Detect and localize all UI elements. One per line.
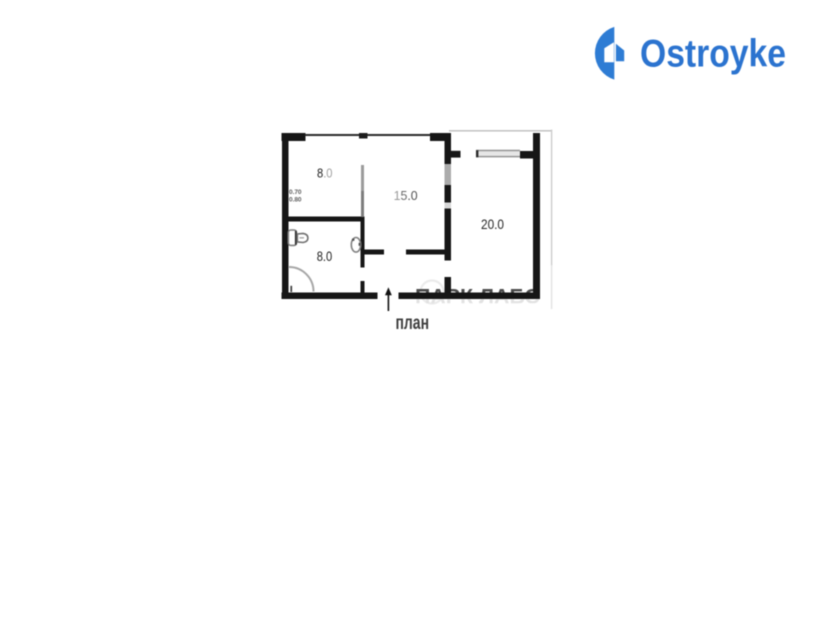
svg-text:план: план bbox=[396, 313, 430, 334]
svg-text:0.70: 0.70 bbox=[289, 189, 302, 196]
svg-text:8.0: 8.0 bbox=[317, 166, 333, 181]
svg-text:0.80: 0.80 bbox=[289, 197, 302, 204]
svg-text:20.0: 20.0 bbox=[481, 216, 504, 232]
svg-text:8.0: 8.0 bbox=[317, 249, 333, 264]
svg-text:15.0: 15.0 bbox=[394, 188, 418, 203]
svg-text:Ostroyke: Ostroyke bbox=[640, 32, 786, 75]
